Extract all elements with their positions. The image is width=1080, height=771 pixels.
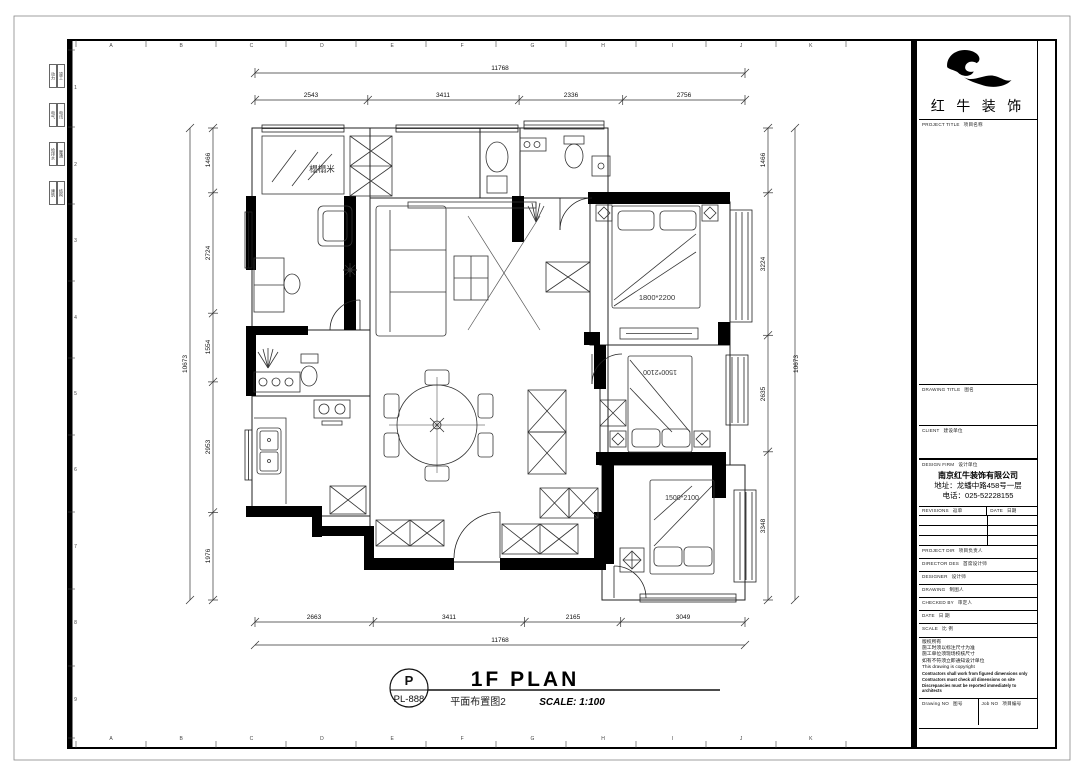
svg-text:2635: 2635 xyxy=(760,386,767,401)
repeated-label: 2 xyxy=(74,162,77,168)
toilet-icon xyxy=(301,354,318,386)
dim-right-total: 10673 xyxy=(793,355,800,373)
revision-row xyxy=(919,526,1037,536)
number-row: Drawing NO图号 Job NO项目编号 xyxy=(919,699,1037,725)
repeated-label: 竣工 xyxy=(57,64,65,88)
title-block: 红 牛 装 饰 PROJECT TITLE项目名称 DRAWING TITLE图… xyxy=(919,40,1038,729)
svg-text:1466: 1466 xyxy=(205,152,212,167)
repeated-label: Contractors shall work from figured dime… xyxy=(922,671,1034,677)
repeated-label: J xyxy=(740,43,743,49)
fridge-icon xyxy=(330,486,366,514)
repeated-label: C xyxy=(250,43,254,49)
repeated-label: Discrepancies must be reported immediate… xyxy=(922,683,1034,695)
svg-text:2336: 2336 xyxy=(564,92,579,99)
row-drawing: DRAWING制图人 xyxy=(919,585,1037,598)
toilet2-icon xyxy=(564,136,584,168)
repeated-label: J xyxy=(740,736,743,742)
bed-size-3: 1500*2100 xyxy=(665,495,699,502)
row-date: DATE日 期 xyxy=(919,611,1037,624)
repeated-label: 给排水 xyxy=(49,142,57,166)
svg-text:2165: 2165 xyxy=(566,614,581,621)
repeated-label: 3 xyxy=(74,238,77,244)
plant-icon xyxy=(343,263,357,277)
repeated-label: B xyxy=(180,43,183,49)
design-firm-label-zh: 设计单位 xyxy=(958,462,977,467)
repeated-label: 动力 xyxy=(49,64,57,88)
plan-title: 1F PLAN xyxy=(471,668,580,691)
bed-size-master: 1800*2200 xyxy=(639,293,675,302)
floor-plan-svg: 榻榻米 1800*2200 1500*2100 1500*2100 11768 … xyxy=(0,0,1080,771)
firm-address: 地址：龙蟠中路458号一层 xyxy=(922,481,1034,491)
design-firm-section: DESIGN FIRM设计单位 南京红牛装饰有限公司 地址：龙蟠中路458号一层… xyxy=(919,459,1037,507)
plan-subtitle: 平面布置图2 xyxy=(450,696,506,708)
notes-lines: 版权所有施工时须以标注尺寸为准施工单位须现场校核尺寸如有不符须立即通知设计单位T… xyxy=(922,640,1034,671)
row-project-dir: PROJECT DIR项目负责人 xyxy=(919,546,1037,559)
repeated-label: D xyxy=(320,43,324,49)
repeated-label: 1 xyxy=(74,85,77,91)
row-director: DIRECTOR DES首席设计师 xyxy=(919,559,1037,572)
revision-row xyxy=(919,516,1037,526)
repeated-label: H xyxy=(601,736,605,742)
row-scale: SCALE比 例 xyxy=(919,624,1037,637)
repeated-label: F xyxy=(461,736,464,742)
revision-row xyxy=(919,536,1037,546)
repeated-label: 9 xyxy=(74,697,77,703)
repeated-label: E xyxy=(391,736,394,742)
repeated-label: 4 xyxy=(74,315,77,321)
svg-text:3348: 3348 xyxy=(760,518,767,533)
repeated-label: K xyxy=(809,43,812,49)
design-firm-label-en: DESIGN FIRM xyxy=(922,462,954,467)
repeated-label: 8 xyxy=(74,620,77,626)
project-title-section: PROJECT TITLE项目名称 xyxy=(919,120,1037,385)
drawing-no-cell: Drawing NO图号 xyxy=(919,699,979,725)
repeated-label: K xyxy=(809,736,812,742)
brand-name: 红 牛 装 饰 xyxy=(919,96,1037,116)
repeated-label: 建筑 xyxy=(49,181,57,205)
title-block-divider xyxy=(911,40,917,748)
repeated-label: 5 xyxy=(74,391,77,397)
copyright-notes: 版权所有施工时须以标注尺寸为准施工单位须现场校核尺寸如有不符须立即通知设计单位T… xyxy=(919,637,1037,699)
repeated-label: G xyxy=(531,736,535,742)
repeated-label: 暖通 xyxy=(57,142,65,166)
svg-text:2953: 2953 xyxy=(205,439,212,454)
fan-plant2-icon xyxy=(528,202,544,222)
logo-section: 红 牛 装 饰 xyxy=(919,41,1037,120)
svg-text:2724: 2724 xyxy=(205,245,212,260)
client-label-zh: 建设单位 xyxy=(944,428,963,433)
row-checked-by: CHECKED BY审定人 xyxy=(919,598,1037,611)
discipline-stamps: 动力竣工电气电讯给排水暖通建筑结构 xyxy=(49,64,65,205)
room-label-tatami: 榻榻米 xyxy=(309,164,335,174)
svg-text:1976: 1976 xyxy=(205,548,212,563)
project-title-label-zh: 项目名称 xyxy=(964,122,983,127)
fan-plant-icon xyxy=(258,348,278,368)
job-no-cell: Job NO项目编号 xyxy=(979,699,1038,725)
svg-text:2663: 2663 xyxy=(307,614,322,621)
svg-text:3049: 3049 xyxy=(676,614,691,621)
svg-text:1466: 1466 xyxy=(760,152,767,167)
firm-name: 南京红牛装饰有限公司 xyxy=(922,471,1034,481)
bed-master xyxy=(596,205,718,339)
repeated-label: H xyxy=(601,43,605,49)
repeated-label: G xyxy=(531,43,535,49)
client-label-en: CLIENT xyxy=(922,428,940,433)
repeated-label: A xyxy=(109,43,112,49)
brand-logo-icon xyxy=(943,45,1013,91)
dim-left-total: 10673 xyxy=(182,355,189,373)
notes-bold-lines: Contractors shall work from figured dime… xyxy=(922,671,1034,694)
repeated-label: 结构 xyxy=(57,181,65,205)
bed-size-2: 1500*2100 xyxy=(643,368,677,375)
svg-text:1554: 1554 xyxy=(205,339,212,354)
project-title-label-en: PROJECT TITLE xyxy=(922,122,960,127)
rev-date-label-en: DATE xyxy=(990,508,1003,513)
client-section: CLIENT建设单位 xyxy=(919,426,1037,459)
plan-labels: 榻榻米 1800*2200 1500*2100 1500*2100 xyxy=(309,164,699,502)
repeated-label: A xyxy=(109,736,112,742)
repeated-label: I xyxy=(672,736,673,742)
drawing-title-section: DRAWING TITLE图名 xyxy=(919,385,1037,426)
personnel-rows: PROJECT DIR项目负责人 DIRECTOR DES首席设计师 DESIG… xyxy=(919,546,1037,637)
revisions-label-en: REVISIONS xyxy=(922,508,949,513)
grid-ticks xyxy=(68,40,846,748)
plan-scale: SCALE: 1:100 xyxy=(539,697,605,708)
repeated-label: F xyxy=(461,43,464,49)
repeated-label: I xyxy=(672,43,673,49)
drawing-sheet: 榻榻米 1800*2200 1500*2100 1500*2100 11768 … xyxy=(0,0,1080,771)
revisions-table: REVISIONS返单 DATE日期 xyxy=(919,507,1037,546)
plan-tag-code: PL-888 xyxy=(394,694,425,705)
title-emblem: P PL-888 1F PLAN 平面布置图2 SCALE: 1:100 xyxy=(390,668,720,708)
svg-text:3411: 3411 xyxy=(442,614,456,621)
repeated-label: C xyxy=(250,736,254,742)
plan-tag-letter: P xyxy=(405,673,414,688)
drawing-title-label-en: DRAWING TITLE xyxy=(922,387,960,392)
svg-text:2543: 2543 xyxy=(304,92,319,99)
revisions-label-zh: 返单 xyxy=(953,508,963,513)
grid-letters-top: ABCDEFGHIJK xyxy=(76,41,846,50)
repeated-label: 电讯 xyxy=(57,103,65,127)
firm-phone: 电话：025-52228155 xyxy=(922,491,1034,501)
stove-icon xyxy=(314,400,350,425)
repeated-label: 电气 xyxy=(49,103,57,127)
repeated-label: B xyxy=(180,736,183,742)
repeated-label: E xyxy=(391,43,394,49)
grid-letters-bottom: ABCDEFGHIJK xyxy=(76,734,846,743)
dim-top-total: 11768 xyxy=(491,65,509,72)
svg-text:3411: 3411 xyxy=(436,92,450,99)
repeated-label: 6 xyxy=(74,467,77,473)
svg-text:3224: 3224 xyxy=(760,256,767,271)
repeated-label: 7 xyxy=(74,544,77,550)
drawing-title-label-zh: 图名 xyxy=(964,387,974,392)
rev-date-label-zh: 日期 xyxy=(1007,508,1017,513)
row-designer: DESIGNER设计师 xyxy=(919,572,1037,585)
dining-table xyxy=(384,370,493,481)
grid-numbers-left: 123456789 xyxy=(71,50,80,738)
dim-bottom-total: 11768 xyxy=(491,637,509,644)
repeated-label: D xyxy=(320,736,324,742)
svg-text:2756: 2756 xyxy=(677,92,692,99)
